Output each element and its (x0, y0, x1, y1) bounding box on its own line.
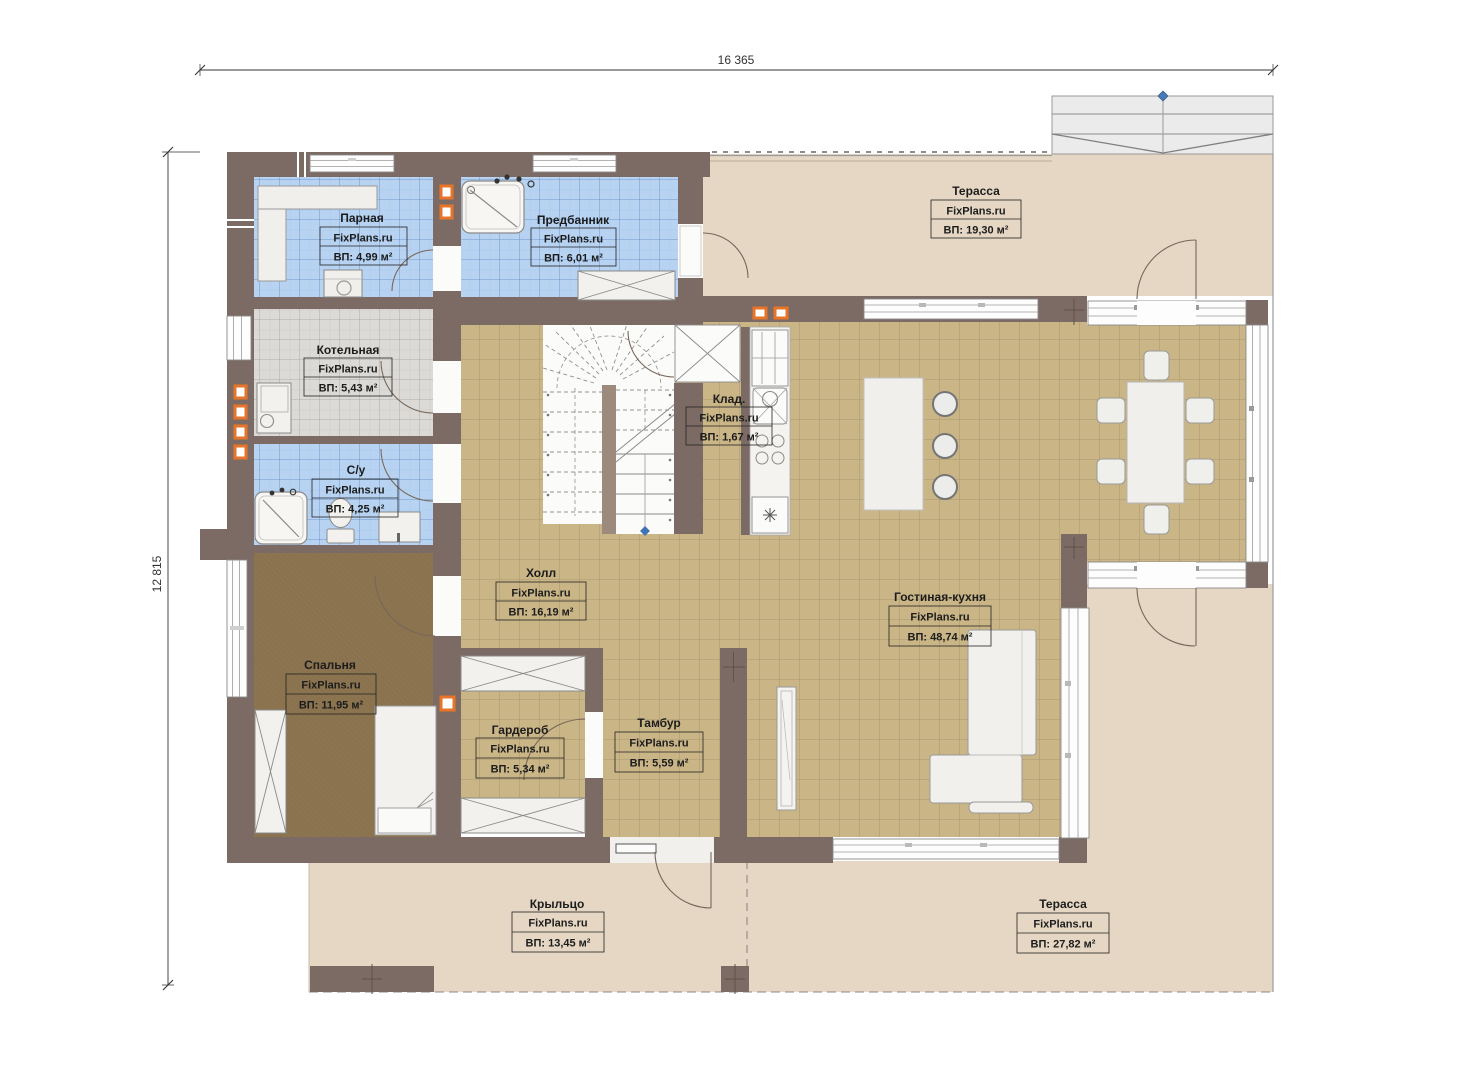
svg-text:FixPlans.ru: FixPlans.ru (490, 744, 549, 756)
svg-text:FixPlans.ru: FixPlans.ru (333, 233, 392, 245)
svg-text:С/у: С/у (347, 463, 366, 477)
svg-text:ВП: 4,99 м²: ВП: 4,99 м² (334, 252, 393, 264)
svg-text:Клад.: Клад. (713, 392, 746, 406)
svg-text:FixPlans.ru: FixPlans.ru (528, 918, 587, 930)
svg-text:ВП: 5,34 м²: ВП: 5,34 м² (491, 764, 550, 776)
svg-text:16 365: 16 365 (718, 53, 755, 67)
svg-text:ВП: 48,74 м²: ВП: 48,74 м² (908, 632, 973, 644)
svg-text:Котельная: Котельная (317, 343, 380, 357)
svg-text:FixPlans.ru: FixPlans.ru (1033, 919, 1092, 931)
svg-text:FixPlans.ru: FixPlans.ru (325, 485, 384, 497)
svg-text:Предбанник: Предбанник (537, 213, 610, 227)
svg-text:ВП: 1,67 м²: ВП: 1,67 м² (700, 432, 759, 444)
svg-text:FixPlans.ru: FixPlans.ru (511, 588, 570, 600)
svg-text:FixPlans.ru: FixPlans.ru (699, 413, 758, 425)
svg-text:FixPlans.ru: FixPlans.ru (544, 234, 603, 246)
svg-text:Терасса: Терасса (1039, 897, 1087, 911)
svg-text:ВП: 11,95 м²: ВП: 11,95 м² (299, 700, 364, 712)
svg-text:FixPlans.ru: FixPlans.ru (910, 612, 969, 624)
svg-text:Гардероб: Гардероб (492, 723, 549, 737)
svg-text:FixPlans.ru: FixPlans.ru (301, 680, 360, 692)
svg-text:ВП: 27,82 м²: ВП: 27,82 м² (1031, 939, 1096, 951)
svg-text:Гостиная-кухня: Гостиная-кухня (894, 590, 986, 604)
svg-text:FixPlans.ru: FixPlans.ru (629, 738, 688, 750)
svg-text:Крыльцо: Крыльцо (530, 897, 585, 911)
svg-text:ВП: 19,30 м²: ВП: 19,30 м² (944, 225, 1009, 237)
svg-text:FixPlans.ru: FixPlans.ru (946, 206, 1005, 218)
svg-text:ВП: 5,59 м²: ВП: 5,59 м² (630, 758, 689, 770)
svg-text:12 815: 12 815 (150, 555, 164, 592)
svg-text:Спальня: Спальня (304, 658, 356, 672)
svg-text:Холл: Холл (526, 566, 556, 580)
svg-text:ВП: 13,45 м²: ВП: 13,45 м² (526, 938, 591, 950)
svg-text:ВП: 4,25 м²: ВП: 4,25 м² (326, 504, 385, 516)
svg-text:ВП: 16,19 м²: ВП: 16,19 м² (509, 607, 574, 619)
svg-text:ВП: 6,01 м²: ВП: 6,01 м² (544, 253, 603, 265)
svg-text:Терасса: Терасса (952, 184, 1000, 198)
svg-text:Тамбур: Тамбур (637, 716, 681, 730)
svg-text:ВП: 5,43 м²: ВП: 5,43 м² (319, 383, 378, 395)
svg-text:FixPlans.ru: FixPlans.ru (318, 364, 377, 376)
svg-text:Парная: Парная (340, 211, 384, 225)
